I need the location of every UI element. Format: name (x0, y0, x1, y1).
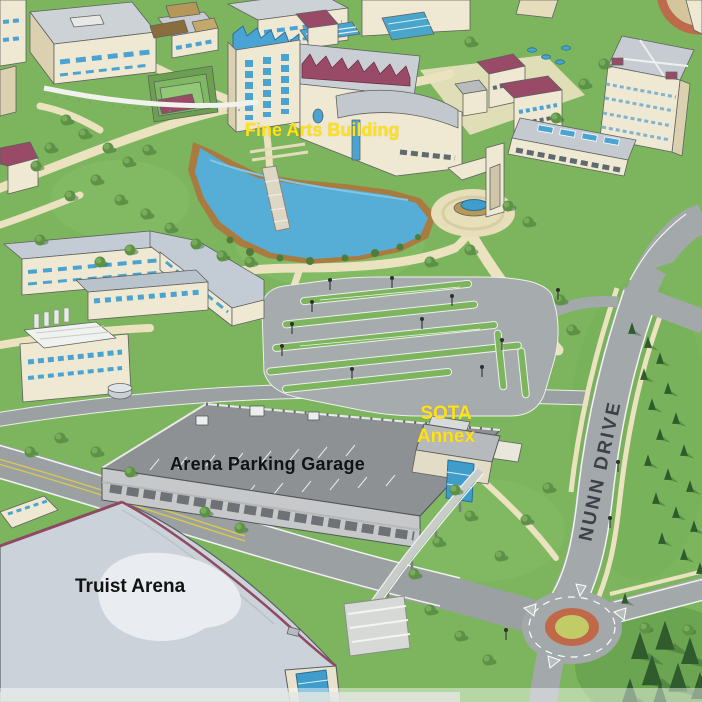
arena-parking-garage-label: Arena Parking Garage (170, 454, 365, 475)
amphitheater (148, 66, 218, 122)
sota-annex-label-line2: Annex (400, 425, 492, 448)
sota-annex-label-line1: SOTA (400, 402, 492, 425)
campus-map: Fine Arts Building SOTA Annex Arena Park… (0, 0, 702, 702)
truist-arena-label: Truist Arena (75, 576, 185, 598)
bottom-fade-band-left (0, 692, 460, 702)
fine-arts-building-label: Fine Arts Building (245, 120, 399, 141)
sota-annex-label: SOTA Annex (400, 402, 492, 448)
parking-lot (262, 277, 558, 416)
